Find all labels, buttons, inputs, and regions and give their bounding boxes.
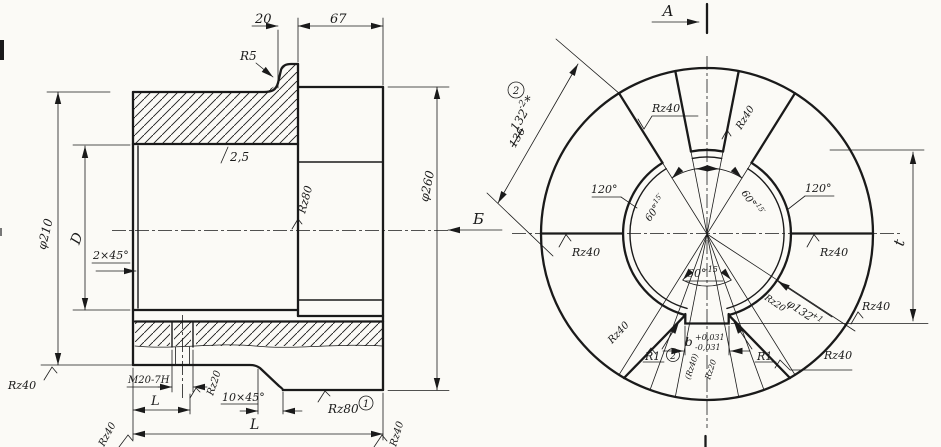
rz20-bore-label: Rz20 — [761, 293, 787, 315]
angle-60-bottom-tol-label: -15 — [705, 265, 718, 274]
section-view: 20 67 R5 2,5 Rz80 φ260 φ210 D 2×45° Rz40… — [7, 12, 460, 447]
angle-120-left-label: 120° — [591, 183, 618, 196]
rz40-slot-bl-label: Rz40 — [605, 319, 632, 346]
dim-67-label: 67 — [330, 12, 347, 27]
scan-artifacts — [0, 40, 4, 236]
dia-132-label: φ132 — [784, 297, 815, 324]
rz20-keyway-label: Rz20 — [703, 358, 718, 381]
blueprint-canvas: 20 67 R5 2,5 Rz80 φ260 φ210 D 2×45° Rz40… — [0, 0, 941, 447]
section-hatching — [133, 64, 383, 346]
dim-l-small-label: L — [150, 394, 160, 409]
dia-260-label: φ260 — [417, 169, 437, 203]
front-view: A Б 2 132 -2 * 136 120° 120° 60° -15′ 60… — [448, 2, 928, 447]
ref-1-label: 1 — [363, 399, 369, 410]
dim-20-label: 20 — [254, 12, 272, 27]
rz40-right-label: Rz40 — [819, 246, 848, 259]
dim-l-total-label: L — [249, 417, 259, 433]
rz40-left-label: Rz40 — [571, 246, 600, 259]
angle-60-right-tol-label: -15′ — [753, 200, 767, 215]
front-dimensions — [448, 4, 928, 447]
view-a-label: A — [661, 2, 674, 20]
chamfer-2x45-label: 2×45° — [92, 249, 129, 262]
section-dimension-lines — [41, 18, 449, 447]
view-b-label: Б — [472, 210, 484, 228]
rz40-left-label: Rz40 — [7, 379, 36, 392]
angle-60-left-label: 60° — [643, 203, 662, 224]
r1-right-label: R1 — [756, 350, 772, 363]
angle-60-bottom-label: 60° — [687, 267, 707, 280]
dia-210-label: φ210 — [35, 217, 56, 251]
key-tol-plus-label: +0,031 — [695, 333, 725, 342]
rz40-corner-left-label: Rz40 — [96, 420, 118, 447]
rz40-corner-right-label: Rz40 — [388, 420, 406, 447]
radius-r5-label: R5 — [239, 49, 257, 63]
rz40-slot-tl-label: Rz40 — [651, 102, 680, 115]
finish-2-5-label: 2,5 — [229, 150, 249, 164]
angle-120-right-label: 120° — [805, 182, 832, 195]
ref-2-label: 2 — [512, 86, 519, 97]
rz40-keyway-ext-label: Rz40 — [861, 300, 890, 313]
dim-t-label: t — [890, 237, 909, 248]
rz80-face-label: Rz80 — [327, 402, 359, 416]
rz40-keyway-side-label: (Rz40) — [683, 352, 700, 380]
key-tol-minus-label: -0,031 — [695, 343, 721, 352]
rz40-slot-tr-label: Rz40 — [734, 104, 758, 133]
angle-60-left-tol-label: -15′ — [650, 192, 664, 207]
dim-d-label: D — [67, 231, 86, 248]
engineering-drawing: 20 67 R5 2,5 Rz80 φ260 φ210 D 2×45° Rz40… — [0, 0, 941, 447]
ref-2-keyway-label: 2 — [669, 352, 676, 362]
chamfer-10x45-label: 10×45° — [222, 391, 265, 404]
thread-m20-label: M20-7H — [127, 375, 170, 386]
r1-left-label: R1 — [644, 350, 660, 363]
rz40-slot-br-label: Rz40 — [823, 349, 852, 362]
key-width-label: b — [685, 335, 693, 349]
